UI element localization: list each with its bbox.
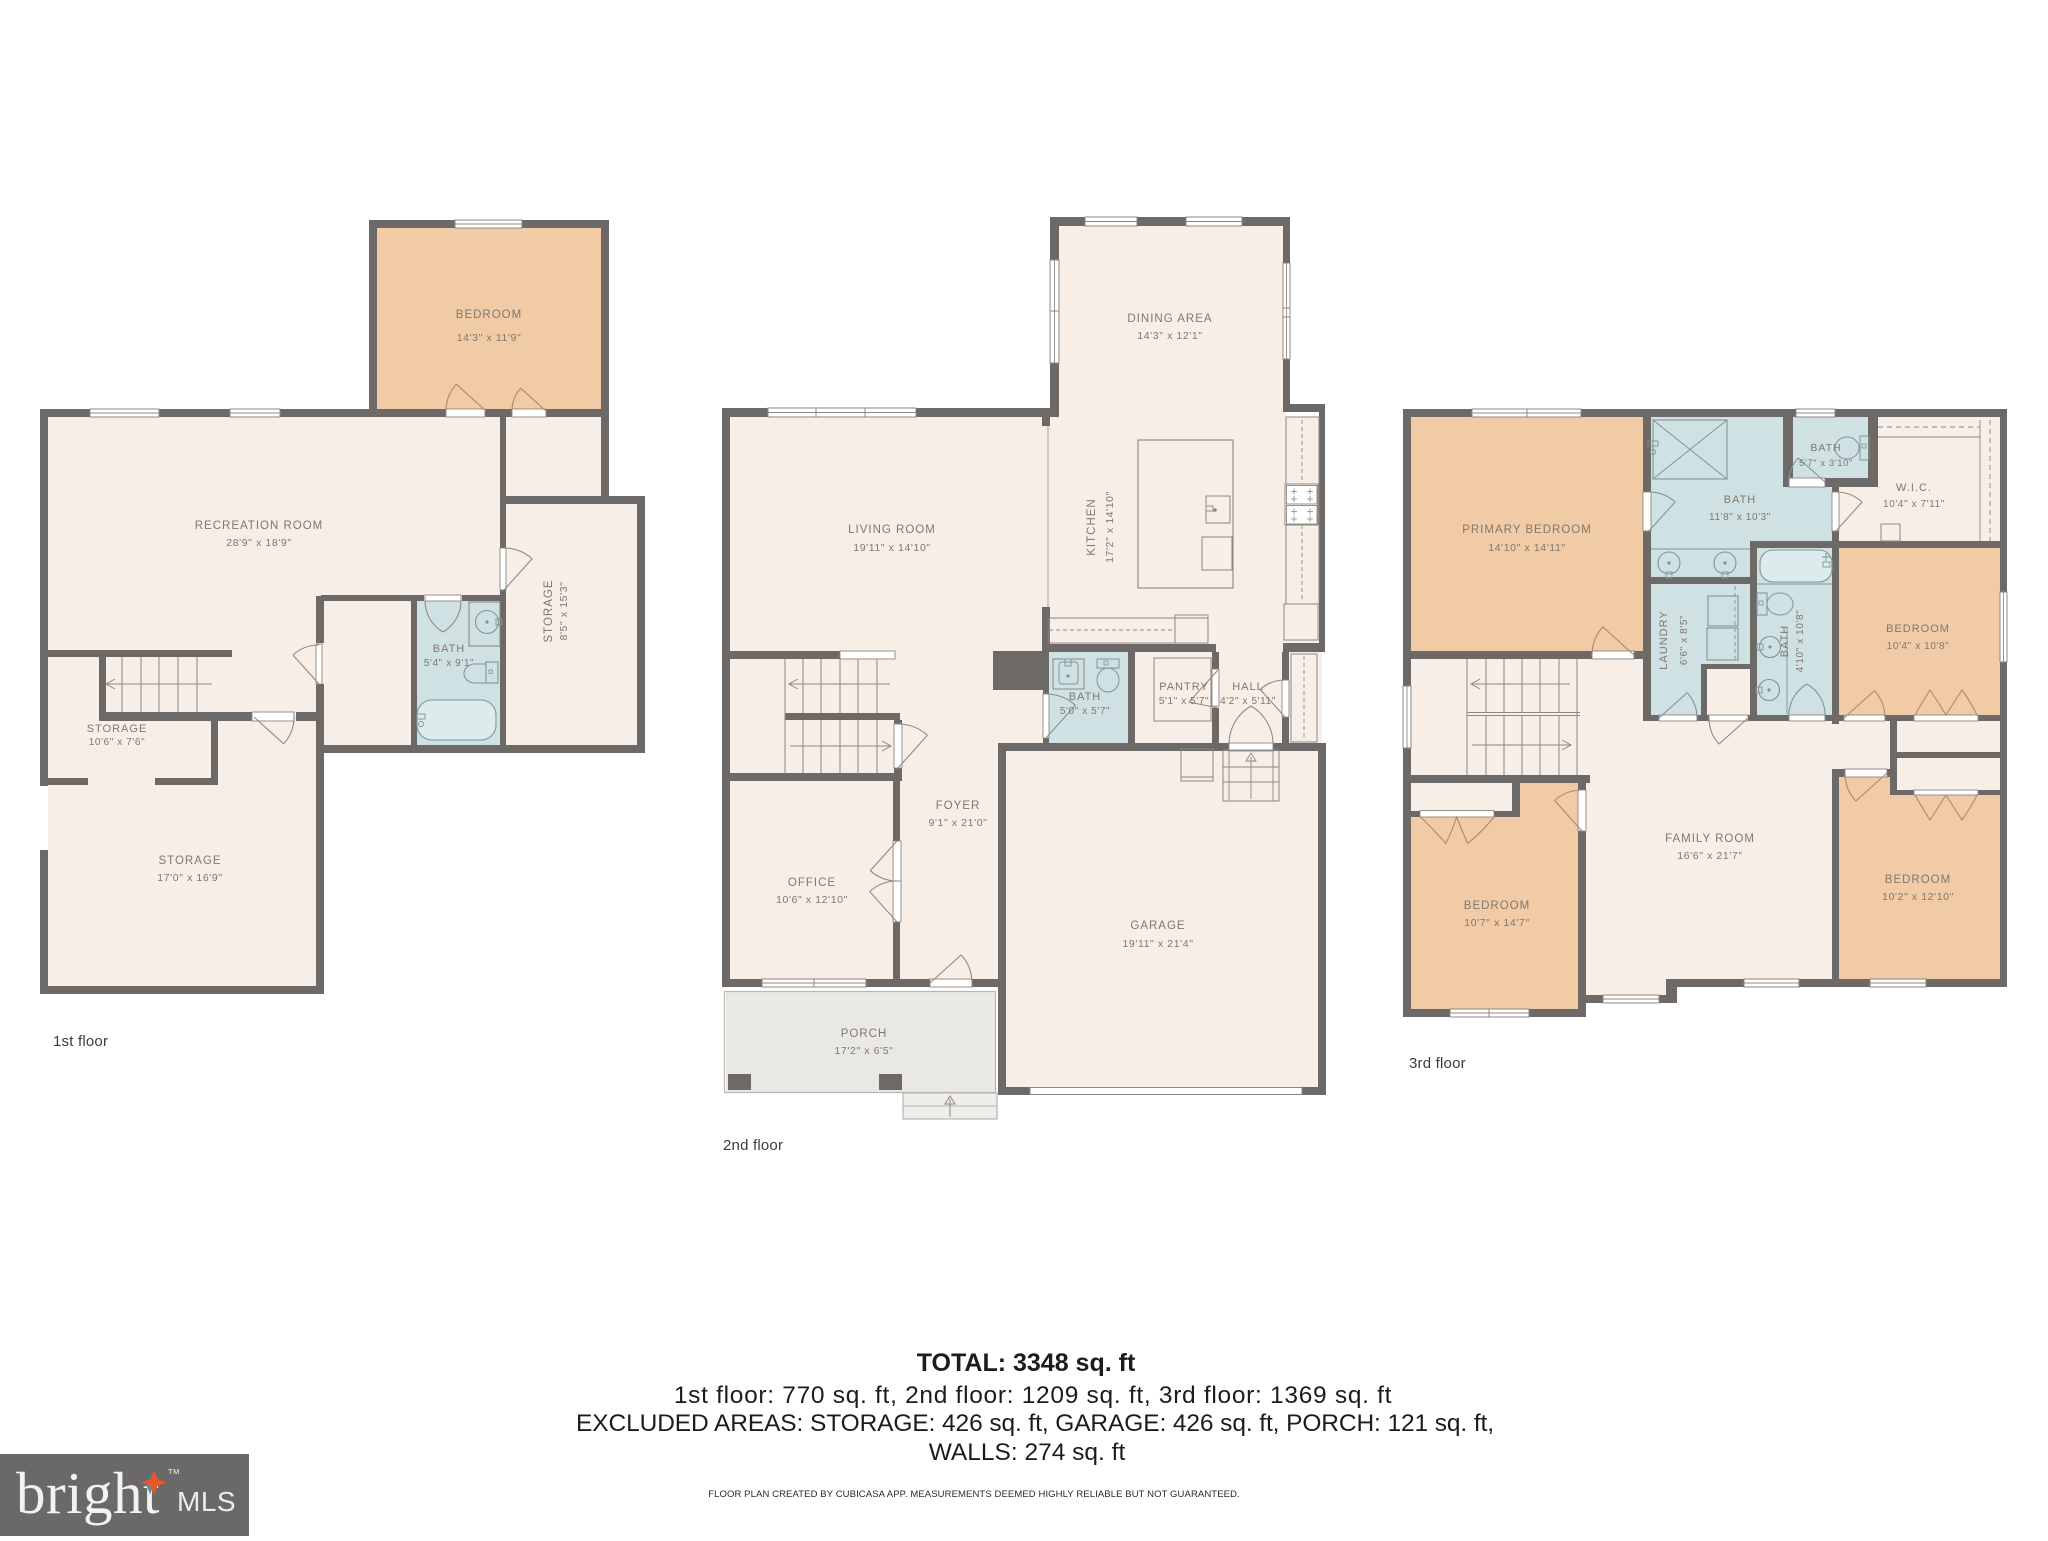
svg-text:11'8" x 10'3": 11'8" x 10'3"	[1709, 512, 1771, 523]
svg-text:1st floor: 1st floor	[53, 1033, 108, 1050]
svg-text:BEDROOM: BEDROOM	[1886, 623, 1950, 635]
svg-text:10'4" x 7'11": 10'4" x 7'11"	[1883, 499, 1945, 510]
svg-text:KITCHEN: KITCHEN	[1086, 498, 1098, 555]
svg-text:3rd floor: 3rd floor	[1409, 1055, 1466, 1072]
svg-text:5'4" x 9'1": 5'4" x 9'1"	[424, 658, 474, 669]
svg-text:BEDROOM: BEDROOM	[1464, 900, 1530, 912]
svg-text:DINING AREA: DINING AREA	[1127, 313, 1212, 325]
svg-text:MLS: MLS	[177, 1486, 236, 1517]
svg-text:EXCLUDED AREAS: STORAGE: 426 s: EXCLUDED AREAS: STORAGE: 426 sq. ft, GAR…	[576, 1410, 1494, 1437]
svg-text:BATH: BATH	[1810, 442, 1841, 454]
svg-text:FAMILY ROOM: FAMILY ROOM	[1665, 833, 1755, 845]
svg-text:5'7" x 3'10": 5'7" x 3'10"	[1799, 458, 1853, 469]
svg-text:BATH: BATH	[433, 643, 466, 655]
svg-text:17'2" x 14'10": 17'2" x 14'10"	[1104, 491, 1116, 563]
svg-text:BEDROOM: BEDROOM	[456, 309, 522, 321]
svg-text:bright: bright	[16, 1460, 160, 1526]
svg-text:16'6" x 21'7": 16'6" x 21'7"	[1677, 850, 1742, 862]
svg-text:9'1" x 21'0": 9'1" x 21'0"	[929, 817, 988, 829]
svg-text:PANTRY: PANTRY	[1159, 681, 1209, 693]
svg-text:HALL: HALL	[1232, 681, 1264, 693]
svg-text:FOYER: FOYER	[936, 800, 981, 812]
svg-text:BATH: BATH	[1724, 494, 1757, 506]
svg-text:PORCH: PORCH	[841, 1028, 888, 1040]
svg-text:8'5" x 15'3": 8'5" x 15'3"	[558, 582, 570, 641]
svg-text:BATH: BATH	[1779, 625, 1791, 658]
svg-text:BEDROOM: BEDROOM	[1885, 874, 1951, 886]
svg-text:5'0" x 5'7": 5'0" x 5'7"	[1060, 706, 1110, 717]
svg-text:RECREATION ROOM: RECREATION ROOM	[195, 520, 324, 532]
svg-text:WALLS: 274 sq. ft: WALLS: 274 sq. ft	[929, 1439, 1126, 1466]
svg-text:6'6" x 8'5": 6'6" x 8'5"	[1679, 615, 1690, 665]
svg-text:17'0" x 16'9": 17'0" x 16'9"	[157, 872, 222, 884]
svg-text:10'6" x 7'6": 10'6" x 7'6"	[89, 737, 145, 748]
svg-text:14'3" x 12'1": 14'3" x 12'1"	[1137, 330, 1202, 342]
svg-text:1st floor: 770 sq. ft, 2nd flo: 1st floor: 770 sq. ft, 2nd floor: 1209 s…	[674, 1382, 1392, 1409]
svg-text:STORAGE: STORAGE	[158, 855, 221, 867]
svg-text:4'2" x 5'11": 4'2" x 5'11"	[1220, 696, 1276, 707]
svg-text:4'10" x 10'8": 4'10" x 10'8"	[1795, 610, 1806, 673]
svg-text:PRIMARY BEDROOM: PRIMARY BEDROOM	[1462, 524, 1592, 536]
svg-text:GARAGE: GARAGE	[1130, 920, 1185, 932]
svg-text:2nd floor: 2nd floor	[723, 1137, 783, 1154]
svg-text:14'3" x 11'9": 14'3" x 11'9"	[457, 332, 522, 344]
svg-text:OFFICE: OFFICE	[788, 877, 836, 889]
svg-text:STORAGE: STORAGE	[87, 723, 148, 735]
svg-text:FLOOR PLAN CREATED BY CUBICASA: FLOOR PLAN CREATED BY CUBICASA APP. MEAS…	[708, 1489, 1240, 1500]
svg-text:TM: TM	[168, 1467, 180, 1476]
svg-text:28'9" x 18'9": 28'9" x 18'9"	[226, 537, 291, 549]
svg-text:5'1" x 5'7": 5'1" x 5'7"	[1159, 696, 1209, 707]
svg-text:10'4" x 10'8": 10'4" x 10'8"	[1887, 641, 1950, 652]
svg-text:LIVING ROOM: LIVING ROOM	[848, 524, 936, 536]
svg-text:19'11" x 14'10": 19'11" x 14'10"	[853, 542, 931, 554]
svg-text:LAUNDRY: LAUNDRY	[1658, 610, 1670, 669]
svg-text:STORAGE: STORAGE	[543, 579, 555, 642]
svg-text:W.I.C.: W.I.C.	[1896, 482, 1932, 494]
svg-text:14'10" x 14'11": 14'10" x 14'11"	[1488, 542, 1566, 554]
svg-text:19'11" x 21'4": 19'11" x 21'4"	[1122, 938, 1193, 950]
svg-text:10'6" x 12'10": 10'6" x 12'10"	[776, 894, 848, 906]
svg-text:10'2" x 12'10": 10'2" x 12'10"	[1882, 891, 1954, 903]
svg-text:BATH: BATH	[1069, 691, 1102, 703]
svg-text:10'7" x 14'7": 10'7" x 14'7"	[1464, 917, 1529, 929]
svg-text:TOTAL: 3348 sq. ft: TOTAL: 3348 sq. ft	[917, 1349, 1136, 1377]
svg-text:17'2" x 6'5": 17'2" x 6'5"	[835, 1045, 894, 1057]
